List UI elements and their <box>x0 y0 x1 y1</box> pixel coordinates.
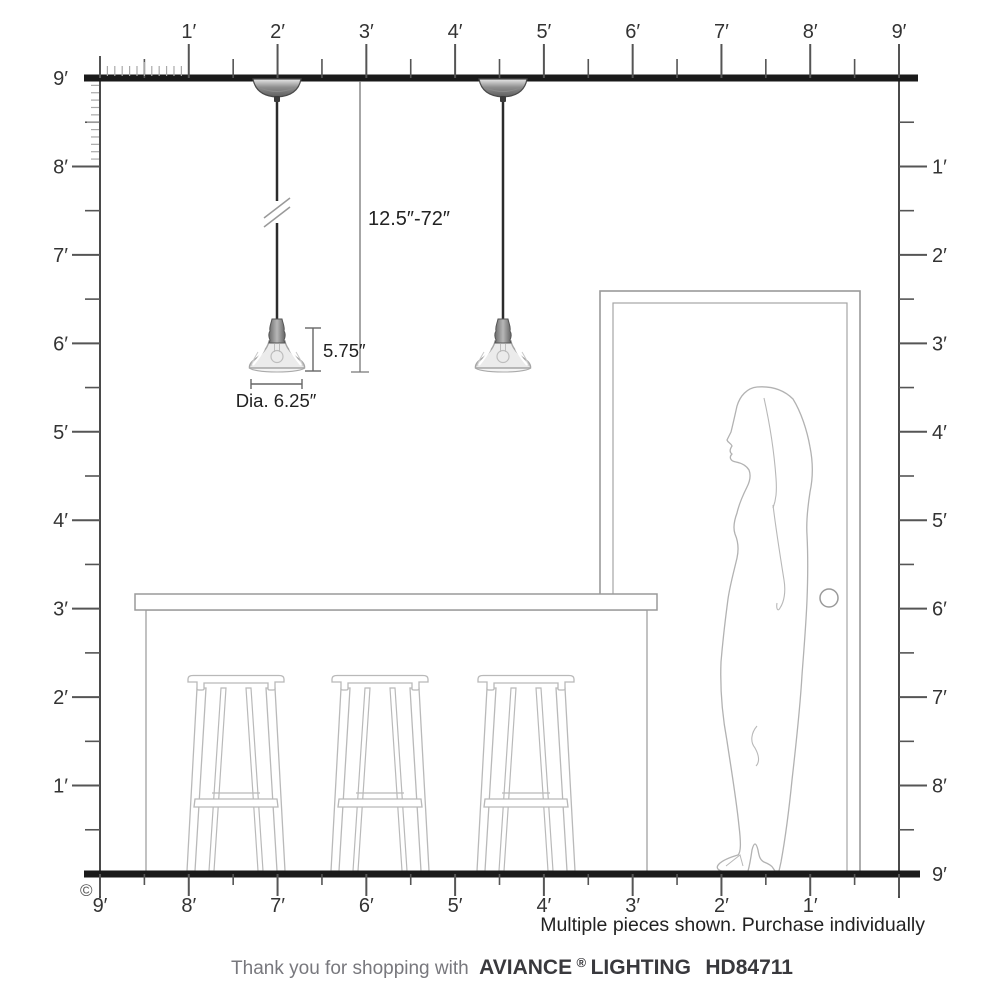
left-ruler-label: 8′ <box>53 156 68 178</box>
model-number: HD84711 <box>705 956 793 979</box>
top-ruler: 1′2′3′4′5′6′7′8′9′ <box>100 21 907 78</box>
shade-height-label: 5.75″ <box>323 340 366 361</box>
top-ruler-label: 2′ <box>270 21 285 43</box>
left-ruler-label: 2′ <box>53 687 68 709</box>
glass-bell-shade <box>249 341 304 368</box>
footer-text: Thank you for shopping with AVIANCE ® LI… <box>231 954 793 979</box>
top-ruler-label: 7′ <box>714 21 729 43</box>
purchase-note: Multiple pieces shown. Purchase individu… <box>540 914 925 936</box>
right-ruler-label: 2′ <box>932 245 947 267</box>
top-ruler-label: 4′ <box>448 21 463 43</box>
top-ruler-label: 1′ <box>181 21 196 43</box>
copyright-symbol: © <box>80 881 93 900</box>
canopy-stem <box>500 96 506 102</box>
left-ruler-label: 6′ <box>53 333 68 355</box>
pendant-light <box>249 79 304 372</box>
right-ruler: 1′2′3′4′5′6′7′8′9′ <box>899 122 947 886</box>
left-ruler-label: 1′ <box>53 776 68 798</box>
bottom-ruler-label: 6′ <box>359 895 374 917</box>
right-ruler-label: 7′ <box>932 687 947 709</box>
stool-footrest <box>484 799 568 807</box>
right-ruler-label: 4′ <box>932 422 947 444</box>
top-ruler-label: 9′ <box>892 21 907 43</box>
shade-socket-fitter <box>495 319 511 343</box>
left-ruler-label: 4′ <box>53 510 68 532</box>
bottom-ruler-label: 5′ <box>448 895 463 917</box>
stool-footrest <box>194 799 278 807</box>
product-dimension-diagram-page: 1′2′3′4′5′6′7′8′9′ 9′8′7′6′5′4′3′2′1′ 1′… <box>0 0 1000 1000</box>
top-ruler-label: 6′ <box>625 21 640 43</box>
top-ruler-label: 3′ <box>359 21 374 43</box>
right-ruler-label: 5′ <box>932 510 947 532</box>
right-ruler-label: 6′ <box>932 599 947 621</box>
pendant-light <box>475 79 530 372</box>
bottom-ruler-label: 7′ <box>270 895 285 917</box>
left-ruler-label: 7′ <box>53 245 68 267</box>
top-ruler-label: 8′ <box>803 21 818 43</box>
door-knob <box>820 589 838 607</box>
registered-trademark-symbol: ® <box>577 955 587 970</box>
cord-length-label: 12.5″-72″ <box>368 208 450 230</box>
bottom-ruler: 9′8′7′6′5′4′3′2′1′ <box>93 874 899 917</box>
left-ruler-label: 5′ <box>53 422 68 444</box>
right-ruler-label: 1′ <box>932 156 947 178</box>
room-scene <box>135 291 860 874</box>
shade-diameter-label: Dia. 6.25″ <box>236 390 317 411</box>
stool-footrest <box>338 799 422 807</box>
bottom-ruler-label: 9′ <box>93 895 108 917</box>
footer-prefix: Thank you for shopping with <box>231 958 469 979</box>
left-ruler-label: 9′ <box>53 68 68 90</box>
right-ruler-label: 3′ <box>932 333 947 355</box>
brand-name: AVIANCE <box>479 956 572 979</box>
right-ruler-label: 9′ <box>932 864 947 886</box>
left-ruler-label: 3′ <box>53 599 68 621</box>
glass-bell-shade <box>475 341 530 368</box>
canopy-stem <box>274 96 280 102</box>
right-ruler-label: 8′ <box>932 776 947 798</box>
counter-top <box>135 594 657 610</box>
top-ruler-label: 5′ <box>536 21 551 43</box>
pendant-light-scale-diagram: 1′2′3′4′5′6′7′8′9′ 9′8′7′6′5′4′3′2′1′ 1′… <box>0 0 1000 1000</box>
brand-suffix: LIGHTING <box>591 956 691 979</box>
bottom-ruler-label: 8′ <box>181 895 196 917</box>
shade-socket-fitter <box>269 319 285 343</box>
left-ruler: 9′8′7′6′5′4′3′2′1′ <box>53 68 100 830</box>
